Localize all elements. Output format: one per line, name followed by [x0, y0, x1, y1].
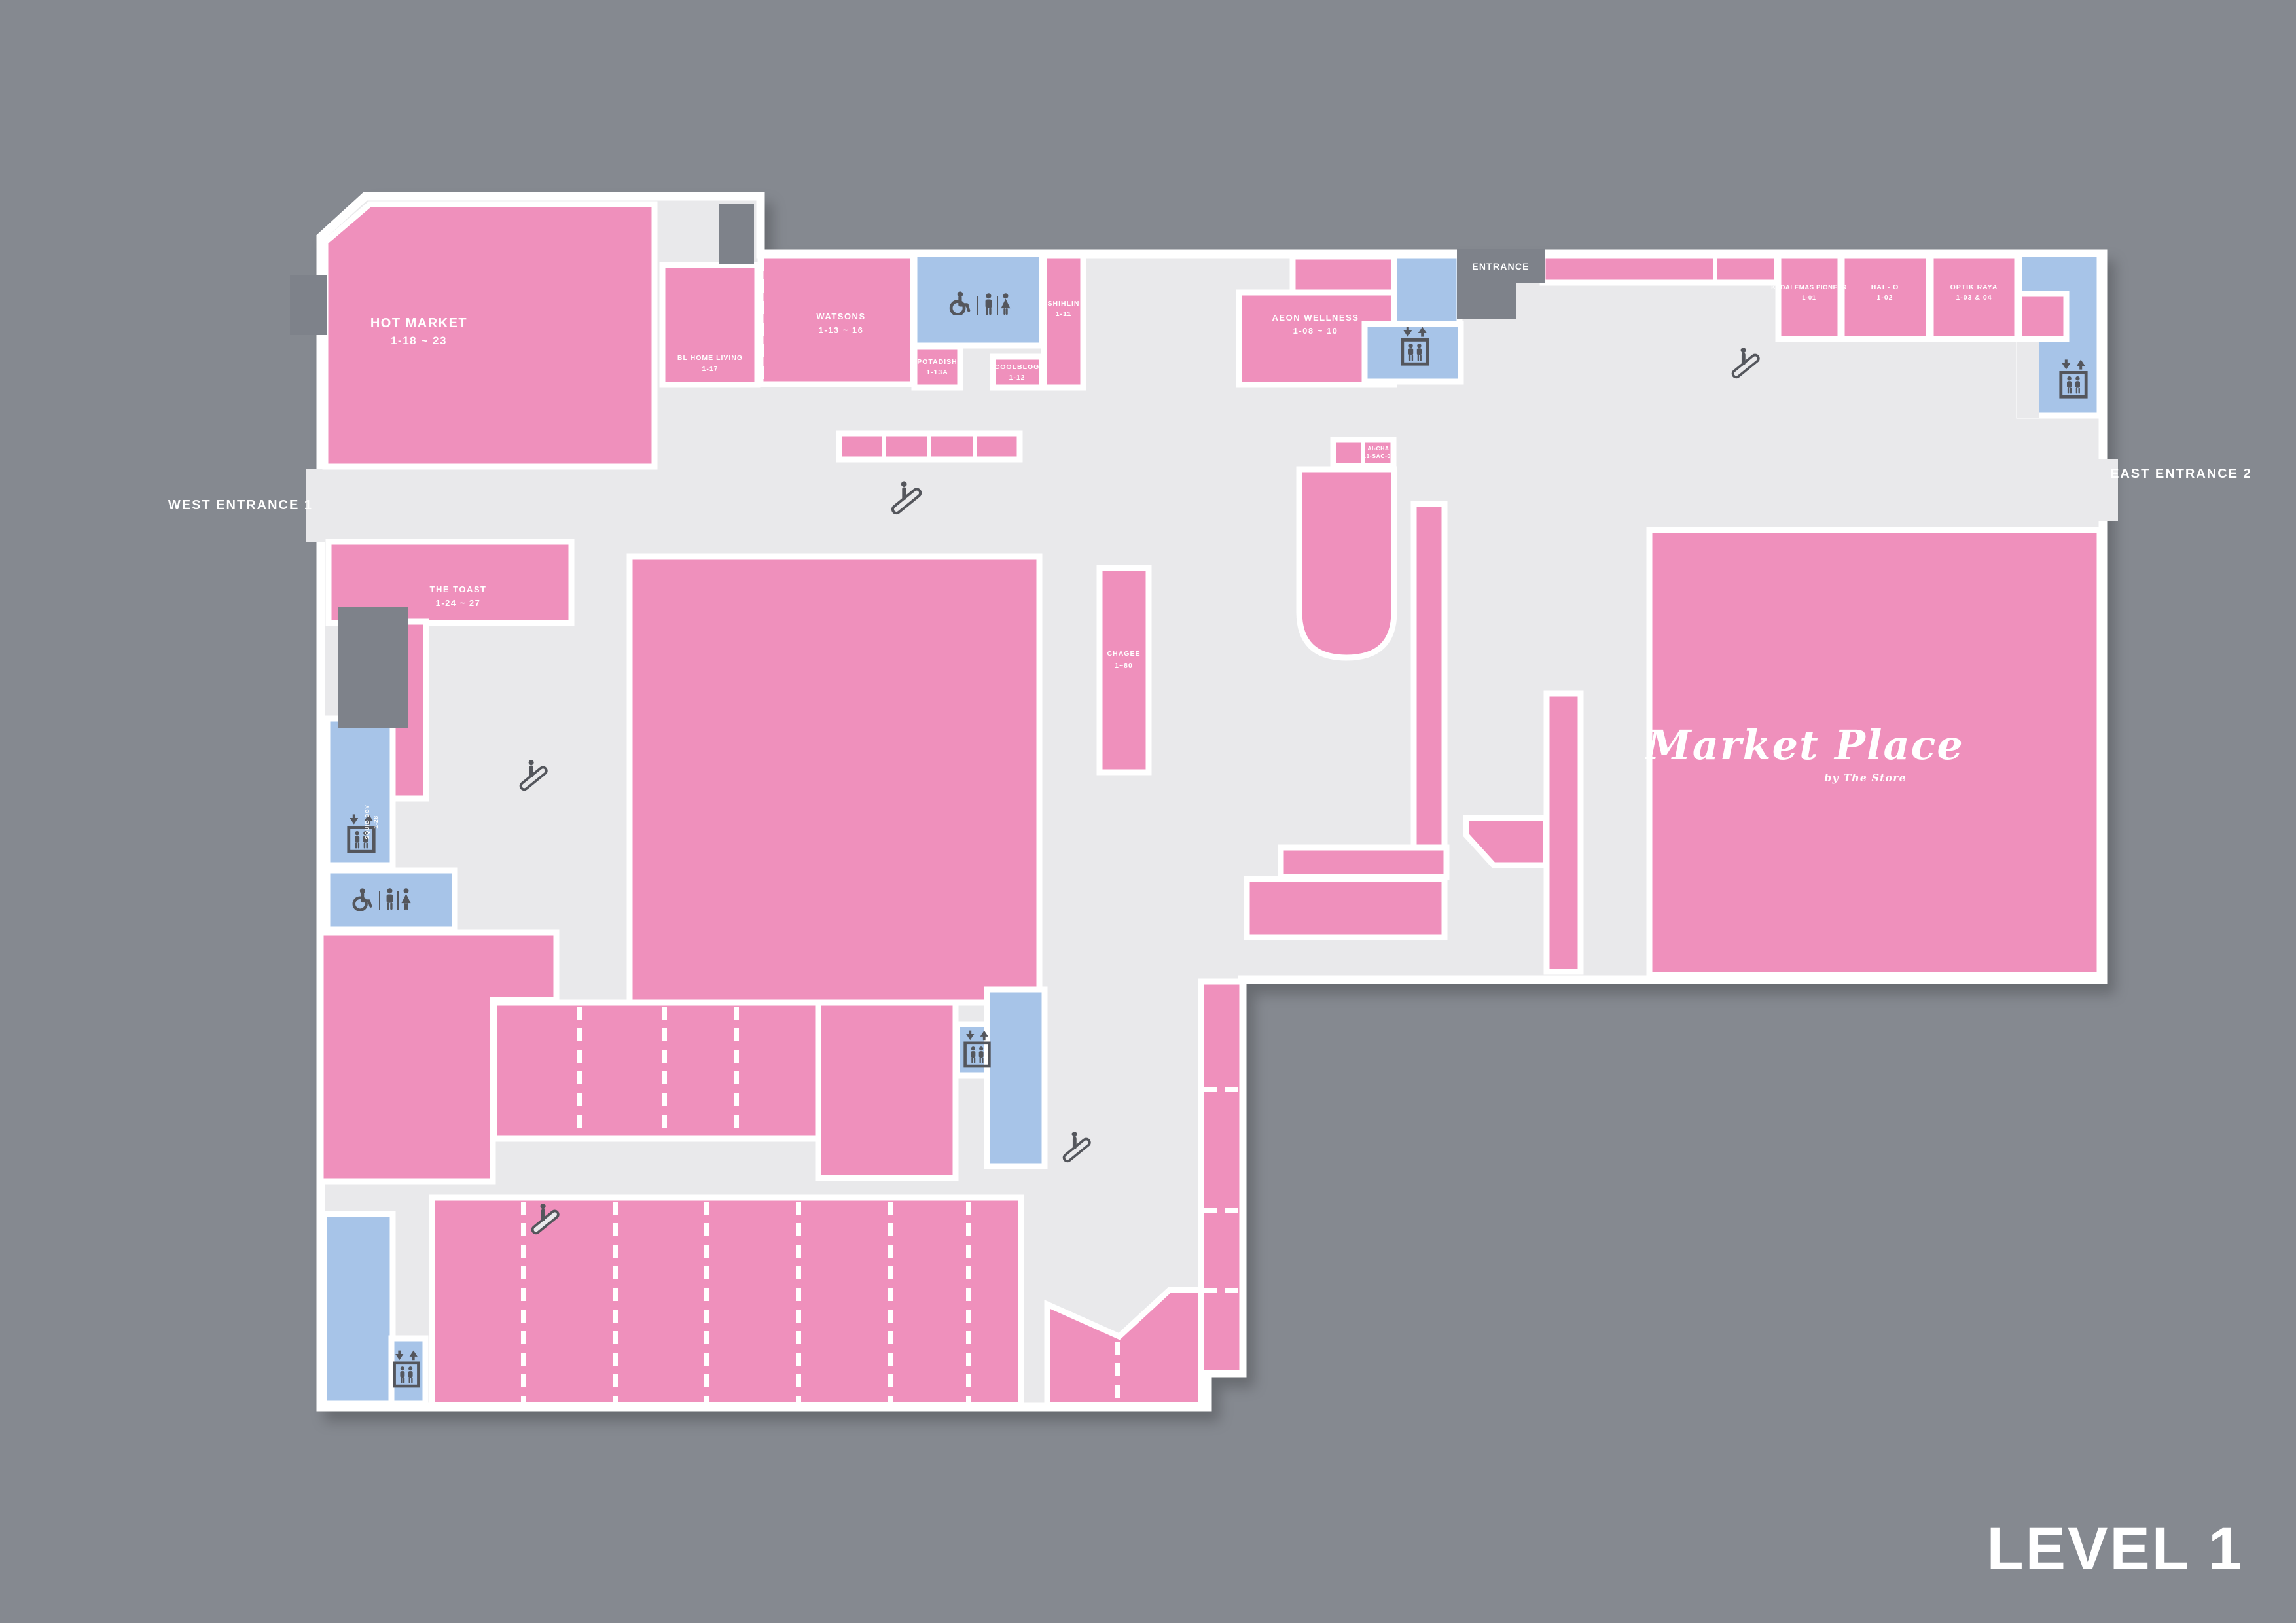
bottom-row-area — [432, 1198, 1021, 1405]
center-arm-area — [1414, 504, 1444, 847]
kiosk-ai-cha-unit: L1-SAC-06 — [1363, 453, 1394, 459]
store-bl-home-living-label: BL HOME LIVING — [677, 354, 743, 362]
store-hot-market-label: HOT MARKET — [370, 316, 467, 330]
store-hai-o-unit: 1-02 — [1876, 294, 1893, 302]
top-strip-area — [1543, 255, 1777, 283]
store-optik-raya-label: OPTIK RAYA — [1950, 283, 1998, 291]
store-coolblog-area — [993, 357, 1042, 387]
store-aeon-wellness-unit: 1-08 ~ 10 — [1293, 326, 1338, 336]
store-coolblog-label: COOLBLOG — [995, 363, 1040, 371]
store-chagee-area — [1100, 568, 1149, 772]
store-hai-o-label: HAI - O — [1871, 283, 1899, 291]
elevator-zone-southwest — [324, 1214, 393, 1404]
elevator-zone-center — [987, 990, 1045, 1166]
store-hot-market-unit: 1-18 ~ 23 — [391, 334, 447, 347]
store-shihlin-area — [1044, 255, 1083, 387]
northeast-zone-notch — [2017, 339, 2039, 418]
store-kedai-emas-unit: 1-01 — [1802, 294, 1816, 302]
store-potadish-unit: 1-13A — [926, 368, 948, 376]
market-place-byline: by The Store — [1824, 772, 1907, 784]
store-watsons-unit: 1-13 ~ 16 — [819, 325, 864, 335]
store-potadish-area — [914, 347, 960, 387]
store-aeon-wellness-label: AEON WELLNESS — [1272, 313, 1359, 323]
store-watsons-label: WATSONS — [816, 312, 865, 321]
vertical-strip-area — [1547, 694, 1581, 972]
store-shihlin-label: SHIHLIN — [1048, 300, 1080, 308]
store-the-toast-label: THE TOAST — [430, 584, 487, 594]
west-entrance-label: WEST ENTRANCE 1 — [168, 498, 313, 512]
store-chagee-unit: 1~80 — [1115, 662, 1133, 669]
east-strip-units-area — [1201, 982, 1242, 1373]
store-the-toast-unit: 1-24 ~ 27 — [436, 598, 481, 608]
store-hot-market-area — [325, 204, 655, 467]
corner-unit-area-2 — [2019, 294, 2066, 339]
store-bl-home-living-unit: 1-17 — [702, 365, 718, 373]
store-optik-raya-unit: 1-03 & 04 — [1956, 294, 1992, 302]
rounded-unit-area — [1299, 469, 1394, 658]
floorplan-canvas: HOT MARKET 1-18 ~ 23 BL HOME LIVING 1-17… — [0, 0, 2296, 1623]
bar-unit-lower-area — [1247, 879, 1444, 937]
store-potadish-label: POTADISH — [917, 358, 957, 366]
kiosk-ai-cha-label: AI-CHA — [1367, 445, 1389, 452]
store-squid-boy-label: SQUID BOY — [364, 804, 370, 839]
store-shihlin-unit: 1-11 — [1056, 310, 1071, 318]
north-entrance-label: ENTRANCE — [1472, 261, 1529, 272]
store-kedai-emas-label: KEDAI EMAS PIONEER — [1771, 284, 1847, 291]
level-title: LEVEL 1 — [1986, 1516, 2244, 1582]
middle-row-area — [494, 1003, 818, 1139]
store-coolblog-unit: 1-12 — [1009, 374, 1025, 382]
bar-unit-upper-area — [1281, 847, 1446, 877]
elevator-zone-west — [327, 719, 393, 865]
anchor-store-area — [630, 556, 1039, 1003]
tall-unit-area — [818, 1003, 956, 1178]
void-block-west-edge — [290, 275, 327, 335]
elevator-zone-southwest-ext — [391, 1338, 425, 1404]
market-place-logo: Market Place — [1645, 721, 1964, 769]
void-block-north — [719, 204, 754, 264]
store-squid-boy-unit: 1-28 — [372, 815, 379, 828]
void-block-west-mid — [338, 607, 408, 728]
store-chagee-label: CHAGEE — [1107, 650, 1141, 658]
void-block-entrance-b — [1457, 283, 1516, 319]
east-entrance-label: EAST ENTRANCE 2 — [2110, 467, 2252, 481]
